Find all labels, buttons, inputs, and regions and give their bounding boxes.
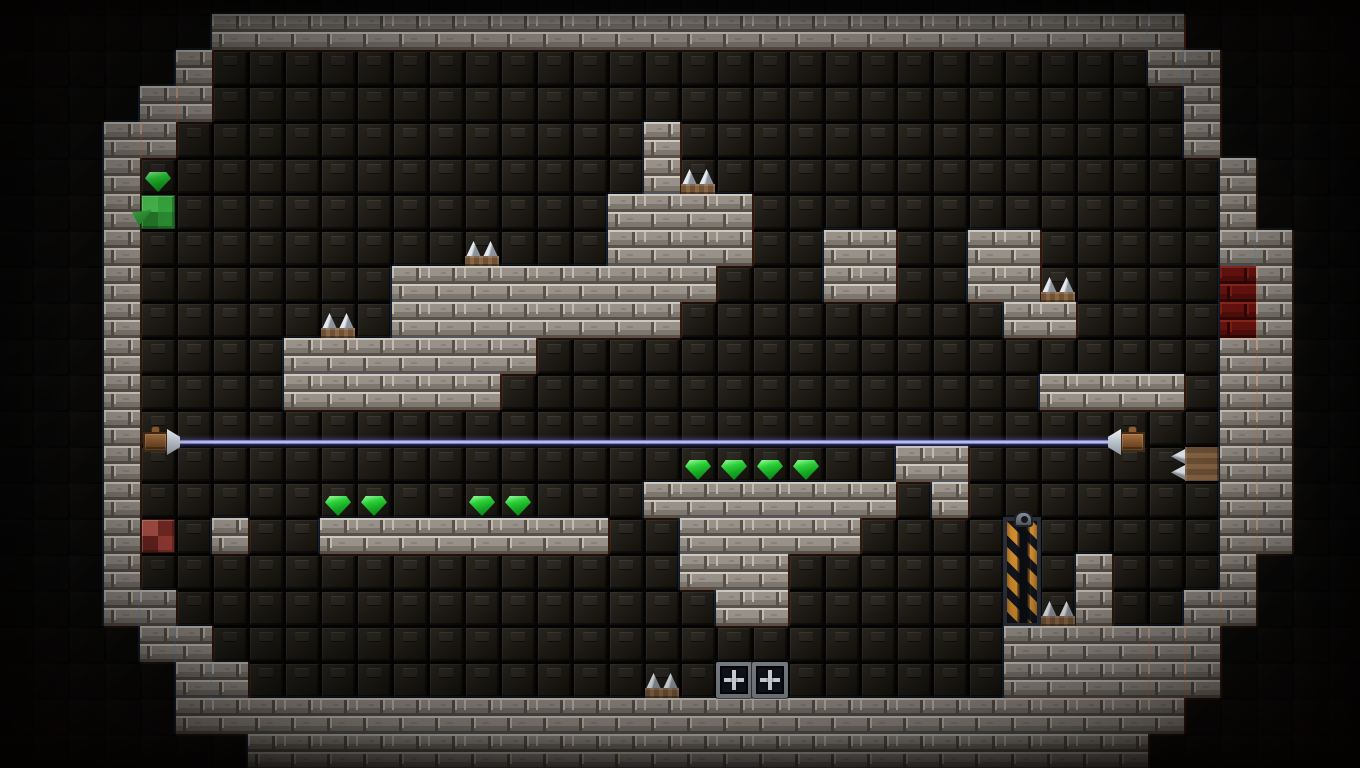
floor-tile-dark [680,590,716,626]
floor-tile-dark [932,86,968,122]
floor-tile-dark [284,662,320,698]
floor-tile-dark [1040,194,1076,230]
floor-tile-dark [212,266,248,302]
floor-tile-dark [500,86,536,122]
floor-tile-dark [392,158,428,194]
brick-block [1076,554,1112,626]
floor-tile-dark [752,266,788,302]
floor-tile-dark [428,626,464,662]
floor-tile-dark [176,482,212,518]
brick-block [932,482,968,518]
exit-door[interactable] [1220,266,1256,338]
floor-tile-dark [1184,554,1220,590]
brick-block [392,302,680,338]
brick-block [896,446,968,482]
floor-tile-dark [572,662,608,698]
floor-tile-dark [788,230,824,266]
floor-tile-dark [1112,194,1148,230]
floor-tile-dark [320,554,356,590]
floor-tile-dark [284,482,320,518]
floor-tile-dark [1112,50,1148,86]
floor-tile-dark [1112,482,1148,518]
floor-tile-dark [752,302,788,338]
floor-tile-dark [572,446,608,482]
floor-tile-dark [788,266,824,302]
floor-tile-dark [644,374,680,410]
floor-tile-dark [320,266,356,302]
spikes-up [464,230,500,266]
floor-tile-dark [284,86,320,122]
floor-tile-dark [212,230,248,266]
floor-tile-dark [824,662,860,698]
floor-tile-dark [860,158,896,194]
floor-tile-dark [572,194,608,230]
laser-emitter[interactable] [140,424,176,460]
floor-tile-dark [644,446,680,482]
floor-tile-dark [428,446,464,482]
receiver-valve [1128,426,1137,433]
floor-tile-dark [788,86,824,122]
floor-tile-dark [140,482,176,518]
brick-block [1220,338,1256,626]
floor-tile-dark [1184,194,1220,230]
floor-tile-dark [788,302,824,338]
brick-block [392,266,716,302]
floor-tile-dark [860,518,896,554]
floor-tile-dark [212,122,248,158]
floor-tile-dark [428,662,464,698]
floor-tile-dark [824,338,860,374]
floor-tile-dark [608,86,644,122]
floor-tile-dark [1184,482,1220,518]
floor-tile-dark [464,50,500,86]
floor-tile-dark [248,50,284,86]
floor-tile-dark [1004,446,1040,482]
brick-block [680,518,860,554]
floor-tile-dark [500,158,536,194]
floor-tile-dark [248,518,284,554]
floor-tile-dark [896,230,932,266]
floor-tile-dark [536,374,572,410]
brick-block [824,230,896,302]
floor-tile-dark [248,194,284,230]
floor-tile-dark [356,122,392,158]
brick-block [644,482,896,518]
floor-tile-dark [860,590,896,626]
floor-tile-dark [284,194,320,230]
floor-tile-dark [1148,482,1184,518]
receiver-body [1120,432,1145,452]
floor-tile-dark [140,338,176,374]
brick-block [140,86,176,158]
emitter-body [143,432,168,452]
floor-tile-dark [1076,194,1112,230]
floor-tile-dark [1184,158,1220,194]
floor-tile-dark [716,338,752,374]
floor-tile-dark [824,374,860,410]
brick-block [1220,158,1256,266]
floor-tile-dark [608,338,644,374]
brick-block [1184,50,1220,158]
spikes-up [320,302,356,338]
floor-tile-dark [896,338,932,374]
floor-tile-dark [572,338,608,374]
floor-tile-dark [1112,518,1148,554]
floor-tile-dark [1112,122,1148,158]
floor-tile-dark [1004,50,1040,86]
brick-block [680,554,788,590]
floor-tile-dark [176,338,212,374]
floor-tile-dark [572,554,608,590]
floor-tile-dark [572,86,608,122]
laser-receiver[interactable] [1112,424,1148,460]
brick-block [320,518,608,554]
floor-tile-dark [788,122,824,158]
floor-tile-dark [1076,50,1112,86]
brick-block [284,374,500,410]
floor-tile-dark [320,122,356,158]
floor-tile-dark [788,554,824,590]
floor-tile-dark [644,590,680,626]
floor-tile-dark [356,554,392,590]
floor-tile-dark [392,86,428,122]
brick-block [1004,626,1148,698]
floor-tile-dark [1148,410,1184,446]
floor-tile-dark [644,554,680,590]
floor-tile-dark [1112,302,1148,338]
floor-tile-dark [1184,266,1220,302]
floor-tile-dark [212,446,248,482]
floor-tile-dark [1112,554,1148,590]
floor-tile-dark [896,662,932,698]
floor-tile-dark [608,482,644,518]
floor-tile-dark [356,662,392,698]
floor-tile-dark [464,590,500,626]
floor-tile-dark [176,158,212,194]
floor-tile-dark [716,86,752,122]
floor-tile-dark [176,554,212,590]
floor-tile-dark [428,50,464,86]
floor-tile-dark [896,374,932,410]
floor-tile-dark [1184,338,1220,374]
brick-block [968,230,1040,302]
floor-tile-dark [824,158,860,194]
floor-tile-dark [392,626,428,662]
floor-tile-dark [752,374,788,410]
floor-tile-dark [464,662,500,698]
floor-tile-dark [716,158,752,194]
floor-tile-dark [392,194,428,230]
floor-tile-dark [824,554,860,590]
floor-tile-dark [1076,266,1112,302]
floor-tile-dark [536,590,572,626]
floor-tile-dark [356,446,392,482]
brick-block [608,194,752,266]
floor-tile-dark [248,590,284,626]
floor-tile-dark [464,446,500,482]
floor-tile-dark [392,590,428,626]
floor-tile-dark [356,86,392,122]
floor-tile-dark [752,338,788,374]
floor-tile-dark [896,482,932,518]
floor-tile-dark [1148,518,1184,554]
floor-tile-dark [788,158,824,194]
floor-tile-dark [1040,482,1076,518]
floor-tile-dark [1148,302,1184,338]
floor-tile-dark [284,230,320,266]
floor-tile-dark [824,194,860,230]
floor-tile-dark [716,50,752,86]
floor-tile-dark [1148,590,1184,626]
floor-tile-dark [752,86,788,122]
floor-tile-dark [896,86,932,122]
laser-beam [172,440,1116,444]
floor-tile-dark [1148,194,1184,230]
floor-tile-dark [608,122,644,158]
spikes-left [1184,446,1220,482]
floor-tile-dark [824,590,860,626]
floor-tile-dark [932,302,968,338]
floor-tile-dark [1148,230,1184,266]
floor-tile-dark [680,662,716,698]
floor-tile-dark [428,158,464,194]
floor-tile-dark [284,626,320,662]
floor-tile-dark [536,122,572,158]
floor-tile-dark [860,194,896,230]
brick-block [248,734,1148,768]
floor-tile-dark [1112,230,1148,266]
floor-tile-dark [428,590,464,626]
floor-tile-dark [536,158,572,194]
floor-tile-dark [212,302,248,338]
floor-tile-dark [572,158,608,194]
brick-block [1256,230,1292,554]
floor-tile-dark [896,158,932,194]
floor-tile-dark [176,230,212,266]
floor-tile-dark [248,302,284,338]
floor-tile-dark [932,554,968,590]
floor-tile-dark [860,446,896,482]
floor-tile-dark [680,122,716,158]
floor-tile-dark [860,50,896,86]
floor-tile-dark [500,230,536,266]
floor-tile-dark [572,482,608,518]
spikes-up [1040,590,1076,626]
floor-tile-dark [968,50,1004,86]
floor-tile-dark [320,86,356,122]
floor-tile-dark [896,302,932,338]
brick-block [212,518,248,554]
floor-tile-dark [1040,122,1076,158]
floor-tile-dark [896,590,932,626]
floor-tile-dark [1076,518,1112,554]
fan-tile[interactable] [716,662,752,698]
floor-tile-dark [824,446,860,482]
floor-tile-dark [356,590,392,626]
brick-block [1004,302,1076,338]
floor-tile-dark [1112,86,1148,122]
floor-tile-dark [1112,158,1148,194]
floor-tile-dark [896,554,932,590]
floor-tile-dark [1004,86,1040,122]
floor-tile-dark [572,50,608,86]
floor-tile-dark [392,50,428,86]
brick-block [176,626,212,698]
floor-tile-dark [212,158,248,194]
floor-tile-dark [968,662,1004,698]
floor-tile-dark [1004,374,1040,410]
floor-tile-dark [680,374,716,410]
floor-tile-dark [392,662,428,698]
floor-tile-dark [572,626,608,662]
floor-tile-dark [860,554,896,590]
floor-tile-dark [536,482,572,518]
floor-tile-dark [932,50,968,86]
floor-tile-dark [716,122,752,158]
floor-tile-dark [248,482,284,518]
floor-tile-dark [1148,158,1184,194]
emitter-valve [151,426,160,433]
floor-tile-dark [608,626,644,662]
floor-tile-dark [1040,50,1076,86]
floor-tile-dark [140,302,176,338]
floor-tile-dark [284,50,320,86]
floor-tile-dark [860,374,896,410]
red-crate[interactable] [141,519,175,553]
floor-tile-dark [1040,518,1076,554]
floor-tile-dark [500,554,536,590]
floor-tile-dark [392,482,428,518]
floor-tile-dark [1040,158,1076,194]
floor-tile-dark [932,626,968,662]
floor-tile-dark [824,626,860,662]
floor-tile-dark [536,446,572,482]
floor-tile-dark [500,590,536,626]
floor-tile-dark [212,338,248,374]
floor-tile-dark [680,338,716,374]
floor-tile-dark [788,338,824,374]
game-viewport[interactable] [0,0,1360,768]
floor-tile-dark [392,554,428,590]
floor-tile-dark [716,266,752,302]
floor-tile-dark [176,266,212,302]
floor-tile-dark [464,554,500,590]
floor-tile-dark [1184,302,1220,338]
floor-tile-dark [680,626,716,662]
floor-tile-dark [968,482,1004,518]
floor-tile-dark [356,194,392,230]
floor-tile-dark [140,266,176,302]
floor-tile-dark [536,662,572,698]
floor-tile-dark [248,374,284,410]
brick-block [212,14,1184,50]
floor-tile-dark [1076,302,1112,338]
floor-tile-dark [860,338,896,374]
floor-tile-dark [320,590,356,626]
floor-tile-dark [644,338,680,374]
floor-tile-dark [968,446,1004,482]
floor-tile-dark [248,86,284,122]
floor-tile-dark [320,446,356,482]
floor-tile-dark [536,86,572,122]
floor-tile-dark [896,50,932,86]
floor-tile-dark [1112,338,1148,374]
floor-tile-dark [320,158,356,194]
floor-tile-dark [176,194,212,230]
floor-tile-dark [248,338,284,374]
floor-tile-dark [968,590,1004,626]
floor-tile-dark [608,374,644,410]
floor-tile-dark [536,50,572,86]
floor-tile-dark [932,662,968,698]
floor-tile-dark [248,266,284,302]
floor-tile-dark [932,374,968,410]
fan-tile[interactable] [752,662,788,698]
floor-tile-dark [176,590,212,626]
floor-tile-dark [284,554,320,590]
floor-tile-dark [140,554,176,590]
floor-tile-dark [212,554,248,590]
floor-tile-dark [824,122,860,158]
floor-tile-dark [176,302,212,338]
floor-tile-dark [752,626,788,662]
floor-tile-dark [464,86,500,122]
spikes-up [1040,266,1076,302]
floor-tile-dark [1004,158,1040,194]
floor-tile-dark [500,662,536,698]
brick-block [1148,626,1184,698]
floor-tile-dark [644,50,680,86]
floor-tile-dark [536,338,572,374]
floor-tile-dark [680,302,716,338]
floor-tile-dark [968,158,1004,194]
floor-tile-dark [644,626,680,662]
floor-tile-dark [176,374,212,410]
floor-tile-dark [248,626,284,662]
floor-tile-dark [860,662,896,698]
floor-tile-dark [212,50,248,86]
floor-tile-dark [860,86,896,122]
floor-tile-dark [1148,86,1184,122]
floor-tile-dark [572,230,608,266]
floor-tile-dark [428,230,464,266]
floor-tile-dark [752,158,788,194]
floor-tile-dark [284,122,320,158]
floor-tile-dark [896,266,932,302]
floor-tile-dark [464,158,500,194]
floor-tile-dark [968,518,1004,554]
floor-tile-dark [716,374,752,410]
floor-tile-dark [932,338,968,374]
floor-tile-dark [320,50,356,86]
floor-tile-dark [608,158,644,194]
floor-tile-dark [1040,338,1076,374]
floor-tile-dark [896,518,932,554]
floor-tile-dark [1004,194,1040,230]
floor-tile-dark [860,302,896,338]
floor-tile-dark [788,626,824,662]
floor-tile-dark [284,302,320,338]
brick-block [716,590,788,626]
floor-tile-dark [608,518,644,554]
floor-tile-dark [320,230,356,266]
floor-tile-dark [176,518,212,554]
floor-tile-dark [1040,86,1076,122]
floor-tile-dark [788,374,824,410]
floor-tile-dark [608,590,644,626]
floor-tile-dark [1076,338,1112,374]
floor-tile-dark [248,230,284,266]
